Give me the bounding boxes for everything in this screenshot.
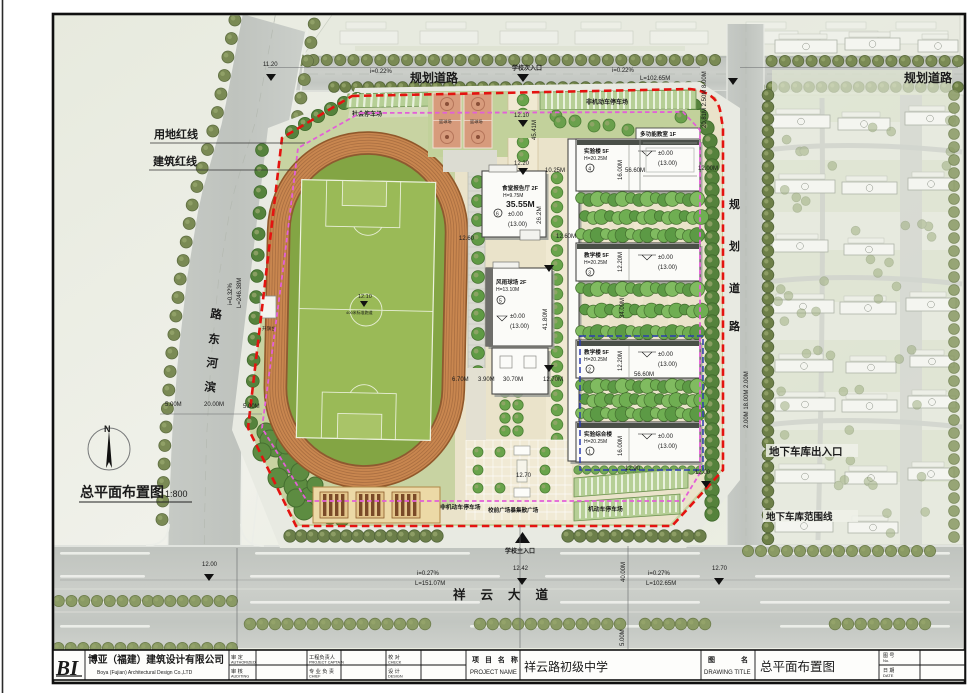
svg-text:路: 路 [729, 319, 741, 333]
svg-text:12.00: 12.00 [202, 562, 218, 568]
svg-text:2.00M 18.00M 2.00M: 2.00M 18.00M 2.00M [744, 371, 750, 428]
svg-text:H=13.10M: H=13.10M [496, 287, 519, 293]
svg-text:5: 5 [499, 299, 502, 305]
svg-text:地下车库范围线: 地下车库范围线 [766, 511, 833, 523]
svg-text:41.80M: 41.80M [542, 309, 549, 330]
svg-text:3: 3 [588, 271, 591, 277]
svg-text:H=20.25M: H=20.25M [584, 439, 607, 445]
svg-text:用地红线: 用地红线 [154, 127, 198, 141]
svg-text:12.90: 12.90 [625, 466, 641, 472]
svg-text:H=20.25M: H=20.25M [584, 156, 607, 162]
svg-text:12.42: 12.42 [513, 566, 529, 572]
svg-text:±0.00: ±0.00 [510, 314, 526, 320]
svg-text:校前广场暴集散广场: 校前广场暴集散广场 [488, 506, 539, 514]
svg-text:多功能教室 1F: 多功能教室 1F [640, 130, 677, 138]
svg-text:45.41M: 45.41M [532, 120, 538, 140]
svg-text:34.00M: 34.00M [620, 298, 626, 318]
svg-text:非机动车停车场: 非机动车停车场 [440, 503, 481, 511]
svg-text:教学楼 5F: 教学楼 5F [583, 251, 609, 259]
svg-text:建筑红线: 建筑红线 [153, 154, 197, 168]
svg-text:项 目 名 称: 项 目 名 称 [472, 655, 520, 664]
svg-text:±0.00: ±0.00 [508, 212, 524, 218]
svg-text:划: 划 [729, 239, 740, 253]
svg-text:东: 东 [208, 331, 222, 346]
svg-text:L=102.65M: L=102.65M [646, 581, 676, 587]
svg-text:DATE: DATE [883, 673, 894, 678]
svg-text:12.60: 12.60 [459, 236, 475, 242]
svg-text:(13.00): (13.00) [658, 444, 677, 450]
svg-text:(13.00): (13.00) [658, 265, 677, 271]
svg-text:26.2M: 26.2M [536, 206, 543, 224]
svg-text:i=0.22%: i=0.22% [370, 69, 393, 75]
svg-text:L=102.65M: L=102.65M [640, 76, 670, 82]
svg-text:12.20: 12.20 [514, 161, 530, 167]
svg-text:12.20M: 12.20M [618, 351, 624, 371]
svg-text:1: 1 [588, 450, 591, 456]
svg-text:L=246.38M: L=246.38M [237, 278, 243, 308]
svg-text:5.00M: 5.00M [243, 404, 260, 410]
svg-text:PROJECT CAPTAIN: PROJECT CAPTAIN [309, 661, 344, 665]
svg-text:20.00M: 20.00M [204, 402, 224, 408]
svg-text:(13.00): (13.00) [508, 222, 527, 228]
svg-text:风雨球场 2F: 风雨球场 2F [496, 278, 527, 286]
svg-text:河: 河 [206, 355, 220, 370]
svg-text:DRAWING TITLE: DRAWING TITLE [704, 670, 751, 676]
svg-text:地下车库出入口: 地下车库出入口 [769, 445, 843, 458]
svg-text:i=0.27%: i=0.27% [417, 571, 440, 577]
svg-text:12.60M: 12.60M [556, 234, 576, 240]
svg-text:H=20.25M: H=20.25M [584, 260, 607, 266]
svg-text:56.60M: 56.60M [634, 372, 654, 378]
svg-text:滨: 滨 [204, 379, 218, 394]
svg-text:±0.00: ±0.00 [658, 352, 674, 358]
svg-text:DESIGN: DESIGN [388, 675, 403, 679]
svg-text:L=151.07M: L=151.07M [415, 581, 445, 587]
svg-text:35.55M: 35.55M [506, 199, 535, 209]
svg-text:总平面布置图: 总平面布置图 [760, 660, 835, 674]
svg-text:篮球场: 篮球场 [470, 118, 483, 125]
svg-text:规划道路: 规划道路 [410, 70, 459, 85]
svg-text:4: 4 [588, 167, 591, 173]
svg-text:AUDITING: AUDITING [231, 675, 249, 679]
svg-text:12.70: 12.70 [712, 566, 728, 572]
svg-text:i=0.22%: i=0.22% [612, 68, 635, 74]
svg-text:规: 规 [729, 197, 740, 211]
svg-text:食堂报告厅 2F: 食堂报告厅 2F [501, 184, 539, 192]
svg-text:12.70M: 12.70M [543, 377, 563, 383]
svg-text:10.25M: 10.25M [545, 168, 565, 174]
svg-text:56.60M: 56.60M [625, 168, 645, 174]
svg-text:学校次入口: 学校次入口 [512, 64, 542, 72]
svg-text:博亚（福建）建筑设计有限公司: 博亚（福建）建筑设计有限公司 [88, 653, 224, 666]
svg-text:i=0.27%: i=0.27% [648, 571, 671, 577]
svg-text:12.70: 12.70 [516, 473, 532, 479]
svg-text:PROJECT NAME: PROJECT NAME [470, 670, 517, 676]
svg-text:12.00: 12.00 [695, 470, 711, 476]
svg-text:教学楼 5F: 教学楼 5F [583, 348, 609, 356]
svg-text:12.20M: 12.20M [618, 252, 624, 272]
svg-text:16.00M: 16.00M [618, 160, 624, 180]
svg-text:400米标准跑道: 400米标准跑道 [346, 309, 373, 315]
svg-text:Boya (Fujian) Architectural De: Boya (Fujian) Architectural Design Co.,L… [97, 670, 193, 676]
svg-text:12.10: 12.10 [514, 113, 530, 119]
svg-text:图 名: 图 名 [708, 655, 760, 664]
svg-text:±0.00: ±0.00 [658, 434, 674, 440]
svg-text:1:800: 1:800 [165, 489, 188, 499]
svg-text:祥云大道: 祥云大道 [453, 587, 563, 602]
svg-text:AUTHORIZED: AUTHORIZED [231, 661, 256, 665]
svg-text:路: 路 [210, 306, 224, 321]
svg-text:30.70M: 30.70M [503, 377, 523, 383]
svg-text:非机动车停车场: 非机动车停车场 [586, 98, 628, 106]
svg-text:社会停车场: 社会停车场 [351, 110, 382, 118]
svg-text:篮球场: 篮球场 [439, 118, 452, 125]
svg-text:11.20: 11.20 [263, 62, 278, 68]
svg-text:3.90M: 3.90M [478, 377, 495, 383]
svg-text:H=20.25M: H=20.25M [584, 357, 607, 363]
svg-text:20.81M 2.50M 8.00M: 20.81M 2.50M 8.00M [702, 71, 708, 128]
svg-text:总平面布置图: 总平面布置图 [80, 484, 164, 500]
svg-text:祥云路初级中学: 祥云路初级中学 [524, 659, 608, 674]
svg-text:6: 6 [496, 212, 499, 218]
svg-text:CHIEF: CHIEF [309, 675, 321, 679]
svg-text:(13.00): (13.00) [658, 362, 677, 368]
svg-text:实验楼 5F: 实验楼 5F [584, 147, 609, 155]
svg-text:No.: No. [883, 658, 889, 663]
svg-text:实验综合楼: 实验综合楼 [584, 430, 612, 438]
svg-text:±0.00: ±0.00 [658, 255, 674, 261]
svg-text:40.00M: 40.00M [621, 562, 627, 582]
svg-text:道: 道 [729, 281, 740, 295]
svg-text:2: 2 [588, 368, 591, 374]
svg-text:i=0.32%: i=0.32% [228, 282, 234, 305]
svg-text:12.00M: 12.00M [698, 166, 718, 172]
svg-text:6.70M: 6.70M [452, 377, 469, 383]
svg-text:5.00M: 5.00M [165, 402, 182, 408]
svg-text:CHECK: CHECK [388, 661, 402, 665]
svg-text:5.00M: 5.00M [620, 629, 626, 646]
svg-text:(13.00): (13.00) [658, 161, 677, 167]
svg-text:12.10: 12.10 [358, 294, 372, 300]
svg-text:机动车停车场: 机动车停车场 [588, 505, 623, 513]
svg-text:N: N [104, 424, 111, 434]
svg-text:±0.00: ±0.00 [658, 151, 674, 157]
svg-text:(13.00): (13.00) [510, 324, 529, 330]
svg-text:16.00M: 16.00M [618, 436, 624, 456]
svg-text:规划道路: 规划道路 [904, 70, 953, 85]
